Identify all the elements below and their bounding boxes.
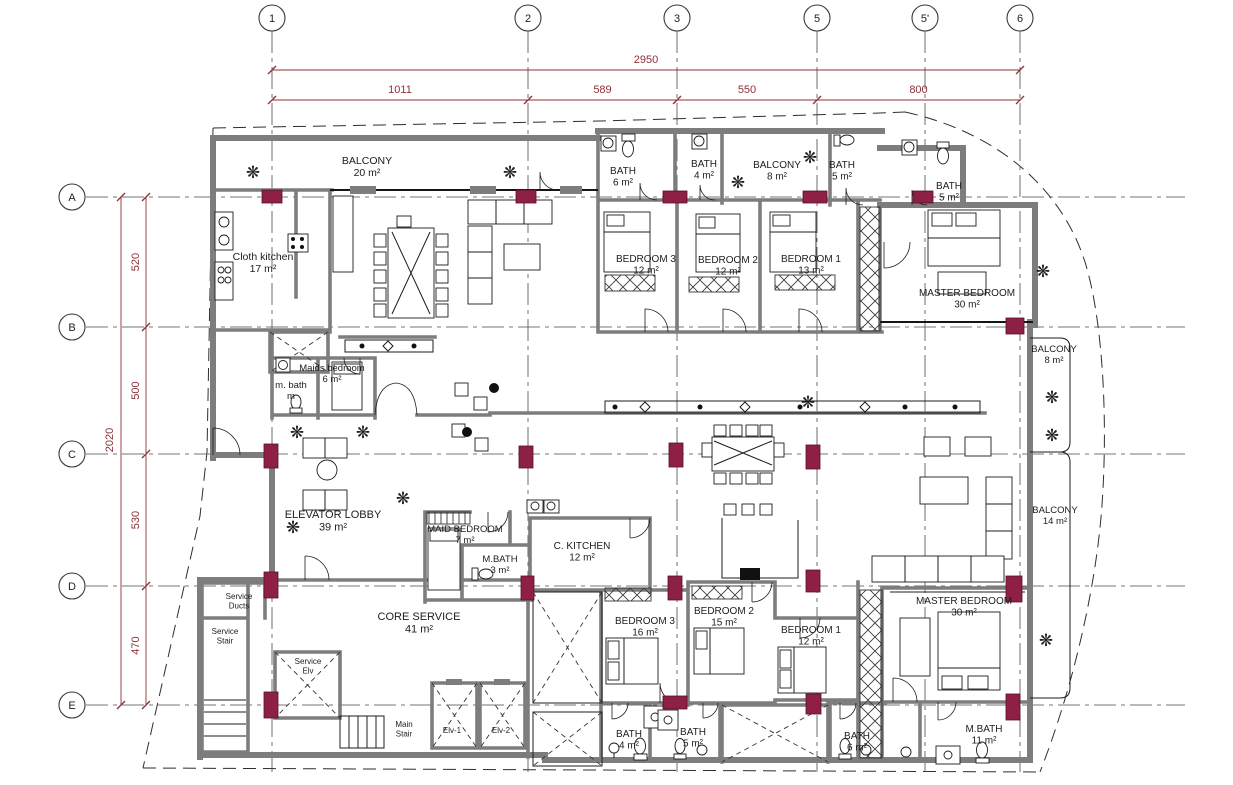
door-arc	[893, 678, 917, 702]
room-label: BEDROOM 1	[781, 625, 841, 636]
room-label: Cloth kitchen	[233, 251, 294, 263]
door-arc	[752, 582, 772, 602]
room-label: BATH	[936, 181, 962, 192]
dimension-label: 800	[909, 84, 927, 96]
shower-icon	[658, 710, 678, 730]
closet-hatch	[427, 512, 470, 524]
room-label: 12 m²	[633, 266, 659, 277]
room-label: 6 m²	[323, 374, 342, 385]
column-marker	[519, 446, 533, 468]
room-label: ELEVATOR LOBBY	[285, 509, 382, 521]
room-label: 41 m²	[405, 624, 433, 636]
furniture-layer	[215, 196, 1012, 693]
toilet-icon	[937, 142, 949, 164]
dining-table-icon	[702, 425, 784, 484]
bed-icon	[900, 612, 1000, 690]
plant-icon: ❋	[246, 163, 260, 183]
bed-icon	[778, 647, 826, 693]
sink-icon	[276, 358, 290, 372]
stairs-icon	[204, 700, 384, 748]
dimension-label: 2950	[634, 54, 658, 66]
room-label: 8 m²	[1045, 355, 1064, 366]
sink-icon	[527, 500, 559, 513]
grid-bubble-label: D	[68, 581, 76, 593]
plant-icon: ❋	[1045, 388, 1059, 408]
room-label: 39 m²	[319, 522, 347, 534]
dimension-label: 2020	[104, 428, 116, 452]
floor-plan-drawing: 12355'6ABCDE	[0, 0, 1233, 785]
living-sofa-icon	[872, 437, 1012, 582]
room-label: 5 m²	[939, 193, 960, 204]
column-marker	[1006, 318, 1024, 334]
dimension-label: 1011	[388, 84, 412, 96]
room-label: BALCONY	[342, 155, 392, 167]
column-marker	[663, 696, 687, 709]
room-label: BEDROOM 3	[615, 616, 675, 627]
lobby-sofa-icon	[303, 438, 347, 510]
room-label: BATH	[616, 729, 642, 740]
dimension-label: 470	[130, 636, 142, 654]
room-label: 5 m²	[683, 739, 704, 750]
grid-bubble-label: B	[68, 322, 75, 334]
dimension-label: 520	[130, 253, 142, 271]
door-arc	[723, 309, 746, 332]
room-label: BALCONY	[1031, 344, 1077, 355]
room-label: BATH	[680, 727, 706, 738]
rug-icon	[900, 618, 930, 676]
plant-icon: ❋	[1045, 426, 1059, 446]
room-label: BATH	[829, 160, 855, 171]
room-label: 30 m²	[951, 608, 977, 619]
room-label: 3 m²	[491, 565, 510, 576]
room-label: BEDROOM 1	[781, 254, 841, 265]
door-arc	[645, 309, 668, 332]
room-label: 30 m²	[954, 300, 980, 311]
door-arc	[540, 172, 558, 190]
plant-icon: ❋	[801, 393, 815, 413]
plant-icon: ❋	[290, 423, 304, 443]
plant-icon: ❋	[731, 173, 745, 193]
shower-icon	[936, 746, 960, 764]
dimension-label: 550	[738, 84, 756, 96]
room-label: Service	[212, 627, 239, 636]
toilet-icon	[834, 135, 854, 146]
room-label: Stair	[396, 730, 413, 739]
dining-table-icon	[374, 216, 448, 318]
room-label: 15 m²	[711, 618, 737, 629]
room-label: 4 m²	[694, 171, 715, 182]
room-label: MASTER BEDROOM	[919, 288, 1015, 299]
room-label: Maids bedroom	[299, 363, 365, 374]
plant-icon: ❋	[356, 423, 370, 443]
door-arc	[213, 428, 240, 455]
floor-plan-canvas: 12355'6ABCDE	[0, 0, 1233, 785]
column-marker	[521, 576, 534, 600]
column-marker	[668, 576, 682, 600]
room-label: BATH	[844, 731, 870, 742]
room-label: BEDROOM 3	[616, 254, 676, 265]
column-marker	[669, 443, 683, 467]
room-label: 12 m²	[569, 553, 595, 564]
room-label: Ducts	[229, 602, 249, 611]
wardrobe-hatch	[605, 275, 655, 291]
room-label: M.BATH	[482, 554, 517, 565]
door-arc	[884, 242, 910, 268]
room-label: M.BATH	[965, 724, 1002, 735]
room-label: Service	[226, 592, 253, 601]
plant-icon: ❋	[1036, 262, 1050, 282]
column-marker	[1006, 694, 1020, 720]
sink-icon	[901, 747, 911, 757]
column-marker	[516, 190, 536, 203]
dimension-label: 589	[593, 84, 611, 96]
room-label: 16 m²	[632, 628, 658, 639]
dimension-label: 530	[130, 511, 142, 529]
grid-bubble-label: 5'	[921, 13, 929, 25]
door-arc	[375, 383, 417, 415]
grid-bubble-label: 3	[674, 13, 680, 25]
grid-bubble-label: C	[68, 449, 76, 461]
room-label: 6 m²	[613, 178, 634, 189]
plant-icon: ❋	[396, 489, 410, 509]
column-marker	[264, 444, 278, 468]
door-arc	[846, 188, 863, 205]
room-label: 4 m²	[619, 741, 640, 752]
bed-icon	[606, 638, 658, 684]
plant-icon: ❋	[1039, 631, 1053, 651]
plant-icon: ❋	[286, 518, 300, 538]
wardrobe-hatch	[692, 586, 742, 599]
room-label: MASTER BEDROOM	[916, 596, 1012, 607]
room-label: BALCONY	[1032, 505, 1078, 516]
room-label: m	[287, 391, 295, 402]
column-marker	[806, 694, 821, 714]
column-marker	[262, 190, 282, 203]
sink-icon	[609, 743, 619, 758]
elevator-icon	[480, 683, 525, 748]
wardrobe-hatch	[605, 588, 651, 601]
sink-icon	[902, 140, 917, 155]
door-arc	[305, 556, 329, 580]
toilet-icon	[622, 134, 635, 157]
door-arc	[630, 518, 650, 538]
room-label: BEDROOM 2	[698, 255, 758, 266]
dimensions-layer: 295010115895508002020520500530470	[104, 54, 1024, 709]
dimension-label: 500	[130, 381, 142, 399]
room-label: Elv	[302, 667, 313, 676]
room-label: Elv-2	[492, 726, 511, 735]
room-label: 13 m²	[798, 266, 824, 277]
column-marker	[803, 191, 827, 203]
room-label: 8 m²	[767, 172, 788, 183]
room-label: 14 m²	[1043, 516, 1067, 527]
lounge-chairs-icon	[452, 383, 499, 451]
room-label: C. KITCHEN	[554, 541, 611, 552]
plant-icon: ❋	[803, 148, 817, 168]
room-label: 17 m²	[250, 263, 277, 275]
grid-bubble-label: 6	[1017, 13, 1023, 25]
room-label: 7 m²	[456, 535, 475, 546]
room-label: 11 m²	[972, 736, 997, 747]
elevator-icon	[432, 683, 477, 748]
room-label: BATH	[691, 159, 717, 170]
wardrobe-hatch	[860, 207, 880, 331]
room-label: Service	[295, 657, 322, 666]
column-marker	[264, 572, 278, 598]
room-label: Main	[395, 720, 412, 729]
room-label: Elv-1	[443, 726, 462, 735]
door-arc	[640, 183, 657, 200]
plant-icon: ❋	[503, 163, 517, 183]
room-label: Stair	[217, 637, 234, 646]
column-marker	[663, 191, 687, 203]
grid-bubble-label: E	[68, 700, 75, 712]
planter-rail	[345, 340, 980, 413]
column-marker	[913, 191, 933, 203]
kitchen-counter-icon	[333, 196, 353, 272]
sofa-icon	[468, 200, 552, 304]
sink-icon	[692, 134, 707, 149]
room-label: 5 m²	[832, 172, 853, 183]
room-label: 12 m²	[798, 637, 824, 648]
room-label: CORE SERVICE	[378, 611, 461, 623]
room-label: BALCONY	[753, 160, 801, 171]
door-arc	[612, 703, 628, 719]
wardrobe-hatch	[775, 275, 835, 290]
grid-bubble-label: 5	[814, 13, 820, 25]
grid-bubble-label: 1	[269, 13, 275, 25]
door-arc	[840, 703, 856, 719]
room-label: 20 m²	[354, 167, 381, 179]
door-arc	[799, 309, 822, 332]
room-label: m. bath	[275, 380, 307, 391]
grid-bubble-label: 2	[525, 13, 531, 25]
bed-icon	[694, 628, 744, 674]
column-marker	[806, 570, 820, 592]
room-label: BATH	[610, 166, 636, 177]
column-marker	[264, 692, 278, 718]
room-label: MAID BEDROOM	[427, 524, 503, 535]
kitchen-bar-icon	[722, 504, 798, 580]
column-marker	[806, 445, 820, 469]
room-label: 6 m²	[847, 743, 868, 754]
sink-icon	[601, 136, 616, 151]
bed-icon	[928, 210, 1000, 294]
room-label: BEDROOM 2	[694, 606, 754, 617]
room-label: 12 m²	[715, 267, 741, 278]
wardrobe-hatch	[689, 277, 739, 292]
grid-bubble-label: A	[68, 192, 76, 204]
door-arc	[700, 185, 715, 200]
